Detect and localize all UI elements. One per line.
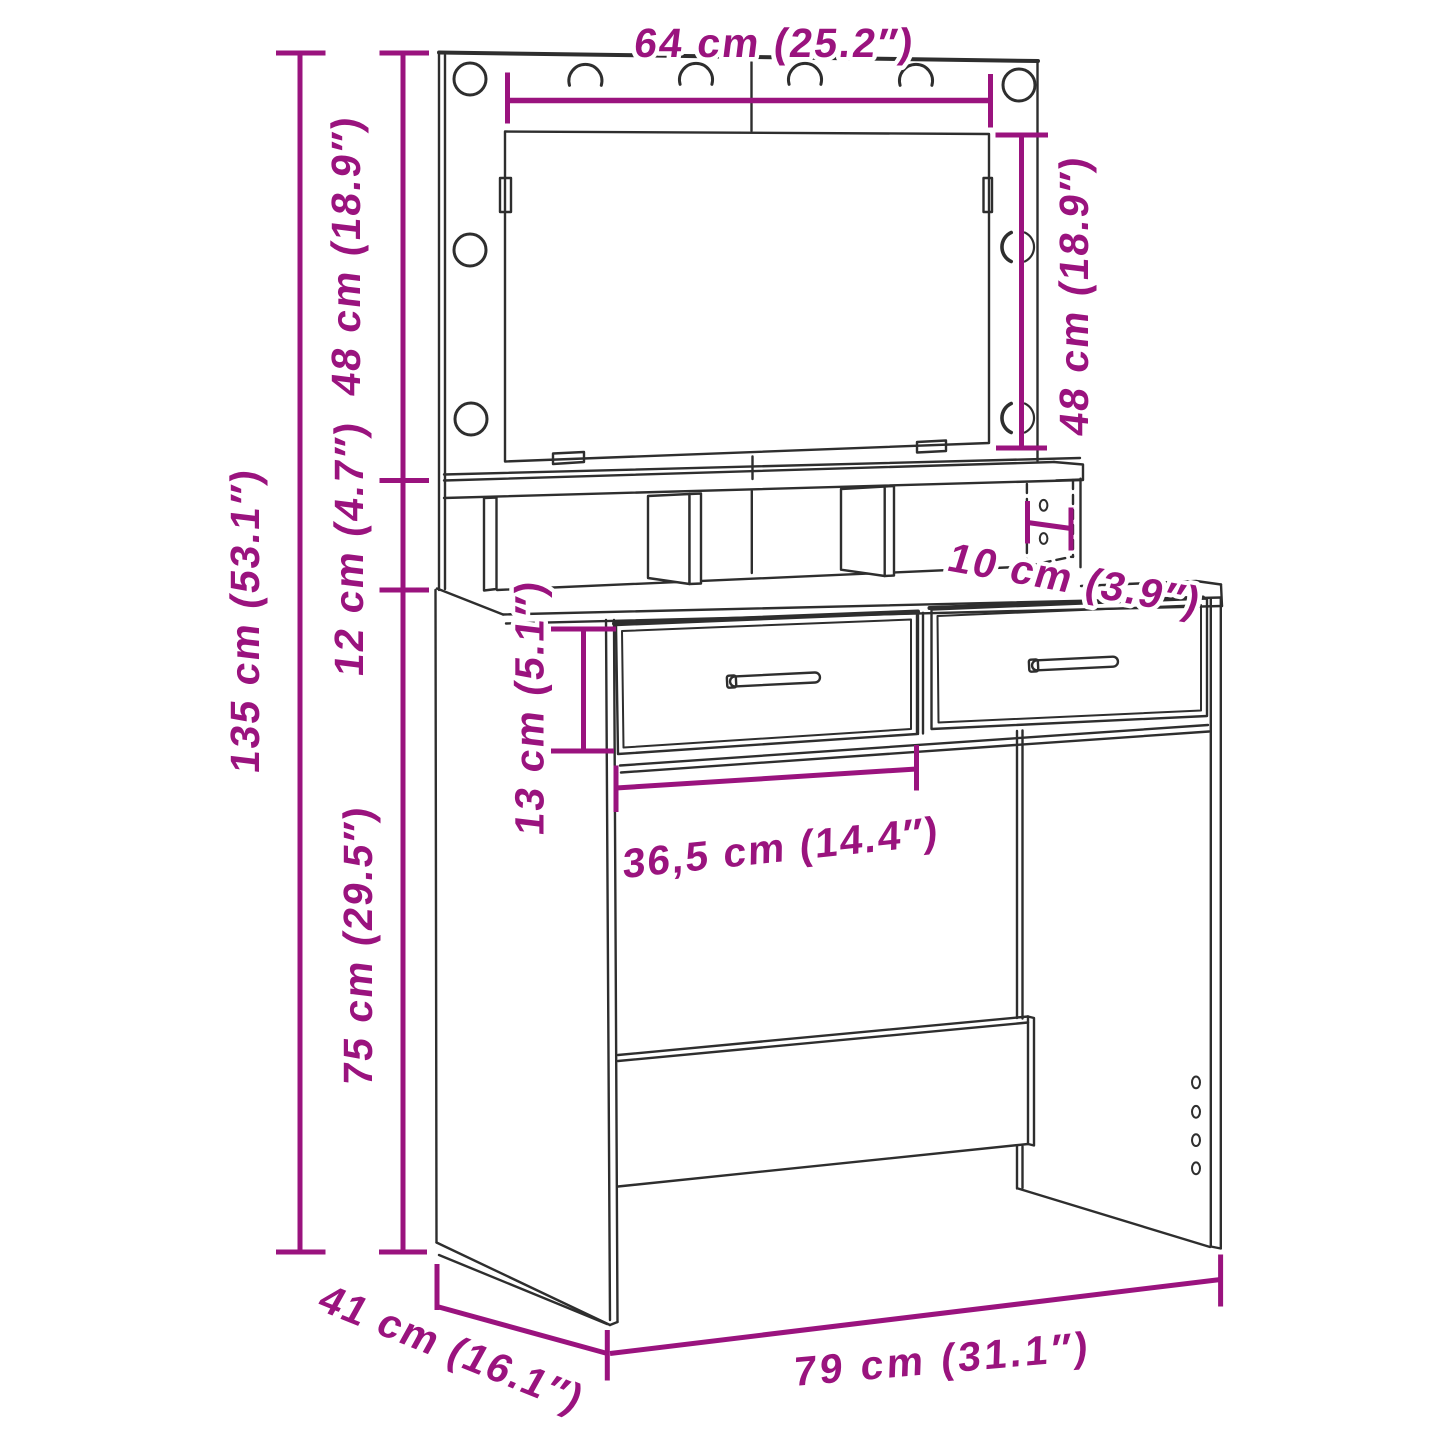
svg-text:75 cm (29.5″): 75 cm (29.5″) bbox=[335, 802, 381, 1088]
svg-text:13 cm (5.1″): 13 cm (5.1″) bbox=[507, 577, 553, 838]
svg-text:12 cm (4.7″): 12 cm (4.7″) bbox=[326, 418, 372, 679]
svg-text:48 cm (18.9″): 48 cm (18.9″) bbox=[323, 112, 369, 398]
svg-text:135 cm (53.1″): 135 cm (53.1″) bbox=[222, 465, 268, 776]
svg-text:64 cm (25.2″): 64 cm (25.2″) bbox=[632, 20, 918, 66]
svg-text:48 cm (18.9″): 48 cm (18.9″) bbox=[1051, 152, 1097, 438]
